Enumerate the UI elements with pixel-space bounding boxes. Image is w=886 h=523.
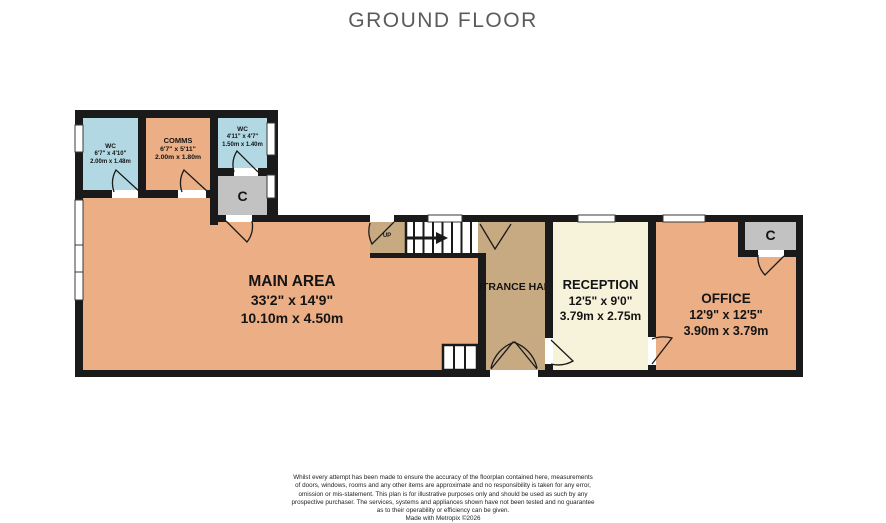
window-right-wc2 — [267, 123, 275, 155]
up-text: UP — [383, 233, 391, 239]
room-label-office: OFFICE 12'9" x 12'5" 3.90m x 3.79m — [656, 290, 796, 339]
room-label-entrance-hall: ENTRANCE HALL — [479, 279, 545, 294]
room-label-reception: RECEPTION 12'5" x 9'0" 3.79m x 2.75m — [553, 277, 648, 324]
room-label-comms: COMMS 6'7" x 5'11" 2.00m x 1.80m — [146, 136, 210, 163]
room-name: C — [237, 188, 247, 204]
room-label-closet1: C — [218, 188, 267, 206]
window-top-stairs — [428, 215, 462, 222]
room-name: ENTRANCE HALL — [479, 281, 545, 293]
floorplan-page: GROUND FLOOR — [0, 0, 886, 523]
entrance-steps — [443, 345, 477, 370]
disclaimer-credit: Made with Metropix ©2026 — [0, 515, 886, 523]
window-right-closet1 — [267, 175, 275, 198]
room-name: MAIN AREA — [172, 272, 412, 292]
room-name: WC — [83, 143, 138, 151]
room-dim-metric: 2.00m x 1.48m — [83, 159, 138, 167]
disclaimer-line: Whilst every attempt has been made to en… — [0, 474, 886, 482]
room-name: WC — [218, 126, 267, 134]
disclaimer-line: prospective purchaser. The services, sys… — [0, 499, 886, 507]
room-dim-metric: 1.50m x 1.40m — [218, 142, 267, 150]
entrance-hall-floor — [478, 222, 545, 370]
room-dim-metric: 3.90m x 3.79m — [656, 323, 796, 339]
room-label-wc2: WC 4'11" x 4'7" 1.50m x 1.40m — [218, 126, 267, 150]
disclaimer: Whilst every attempt has been made to en… — [0, 474, 886, 523]
room-dim-imperial: 4'11" x 4'7" — [218, 134, 267, 142]
room-name: OFFICE — [656, 290, 796, 307]
disclaimer-line: of doors, windows, rooms and any other i… — [0, 482, 886, 490]
room-dim-imperial: 6'7" x 4'10" — [83, 151, 138, 159]
room-dim-metric: 3.79m x 2.75m — [553, 309, 648, 324]
floorplan-drawing — [0, 0, 886, 523]
room-name: C — [765, 227, 775, 243]
disclaimer-line: omission or mis-statement. This plan is … — [0, 491, 886, 499]
room-label-closet2: C — [745, 227, 796, 245]
room-dim-imperial: 33'2" x 14'9" — [172, 292, 412, 310]
room-dim-imperial: 6'7" x 5'11" — [146, 146, 210, 155]
room-dim-imperial: 12'5" x 9'0" — [553, 294, 648, 309]
window-left-main — [75, 200, 83, 300]
room-dim-imperial: 12'9" x 12'5" — [656, 307, 796, 323]
room-name: COMMS — [146, 136, 210, 146]
room-label-main-area: MAIN AREA 33'2" x 14'9" 10.10m x 4.50m — [172, 272, 412, 328]
room-label-wc1: WC 6'7" x 4'10" 2.00m x 1.48m — [83, 143, 138, 167]
room-dim-metric: 2.00m x 1.80m — [146, 154, 210, 163]
room-name: RECEPTION — [553, 277, 648, 294]
stairs-up-label: UP — [377, 233, 397, 241]
window-top-reception — [578, 215, 615, 222]
window-left-wc1 — [75, 125, 83, 152]
window-top-office — [663, 215, 705, 222]
room-dim-metric: 10.10m x 4.50m — [172, 310, 412, 328]
